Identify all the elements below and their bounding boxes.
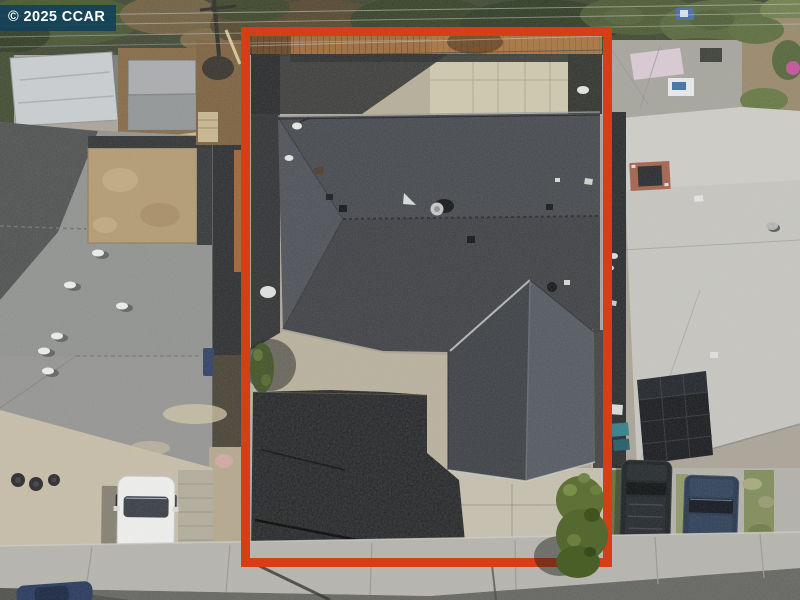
- photo-grain: [0, 0, 800, 600]
- watermark-text: © 2025 CCAR: [8, 9, 105, 25]
- aerial-scene: [0, 0, 800, 600]
- watermark-badge: © 2025 CCAR: [0, 5, 116, 31]
- aerial-photo: © 2025 CCAR: [0, 0, 800, 600]
